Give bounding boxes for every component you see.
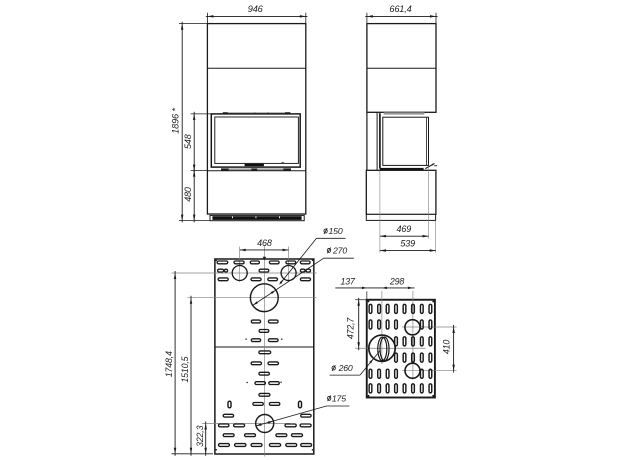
svg-text:150: 150 [328,226,342,236]
svg-text:468: 468 [257,238,272,248]
svg-text:480: 480 [183,187,193,202]
svg-text:946: 946 [248,4,264,14]
svg-text:548: 548 [183,134,193,149]
svg-text:1510,5: 1510,5 [180,356,190,382]
svg-text:472,7: 472,7 [346,317,356,340]
svg-text:270: 270 [332,245,347,255]
svg-text:469: 469 [397,224,412,234]
svg-text:322,3: 322,3 [195,425,205,447]
svg-text:175: 175 [332,393,346,403]
svg-text:661,4: 661,4 [389,4,411,14]
svg-text:298: 298 [389,276,404,286]
svg-text:1748,4: 1748,4 [164,351,174,377]
svg-text:1896 *: 1896 * [170,108,180,134]
svg-text:137: 137 [340,276,355,286]
svg-text:260: 260 [338,363,353,373]
svg-text:410: 410 [441,340,451,354]
svg-text:539: 539 [400,239,415,249]
